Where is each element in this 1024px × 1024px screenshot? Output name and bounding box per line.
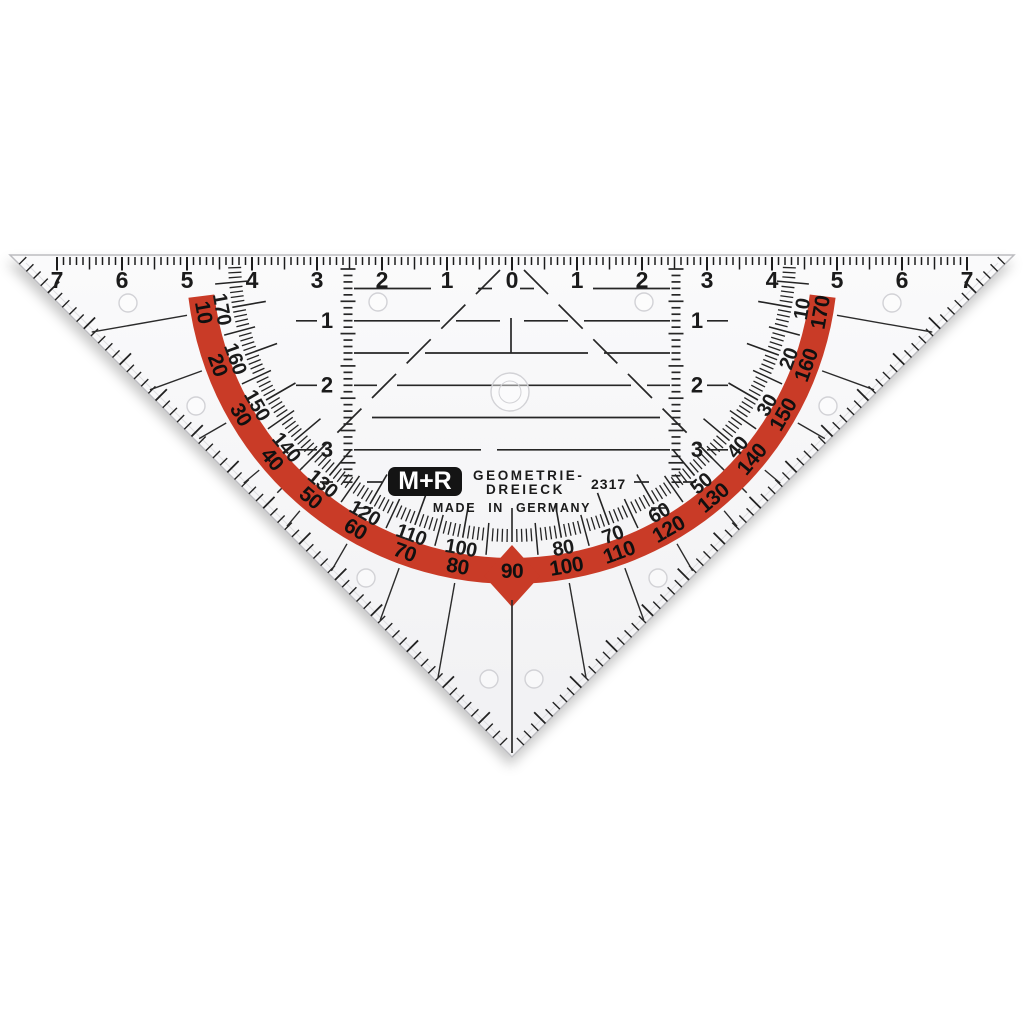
product-photo: 765432101234567 112233 10203040506070801…	[0, 0, 1024, 1024]
product-name-line2: DREIECK	[486, 482, 565, 497]
molding-dot	[525, 670, 543, 688]
molding-dot	[480, 670, 498, 688]
band-degree-label: 90	[501, 560, 523, 583]
guide-label-right: 3	[691, 437, 703, 462]
cm-label: 6	[896, 267, 909, 293]
cm-label: 0	[506, 267, 519, 293]
guide-label-left: 1	[321, 308, 333, 333]
cm-label: 6	[116, 267, 129, 293]
molding-dot	[369, 293, 387, 311]
cm-label: 5	[831, 267, 844, 293]
brand-logo-text: M+R	[398, 467, 451, 495]
molding-dot	[187, 397, 205, 415]
molding-dot	[119, 294, 137, 312]
cm-label: 1	[571, 267, 584, 293]
guide-label-right: 2	[691, 372, 703, 397]
guide-label-right: 1	[691, 308, 703, 333]
cm-label: 4	[766, 267, 779, 293]
cm-label: 3	[701, 267, 714, 293]
band-degree-label: 10	[190, 299, 217, 325]
cm-label: 3	[311, 267, 324, 293]
guide-label-left: 3	[321, 437, 333, 462]
molding-dot	[819, 397, 837, 415]
molding-dot	[491, 373, 529, 411]
cm-label: 4	[246, 267, 259, 293]
band-degree-label: 80	[445, 553, 471, 580]
cm-label: 1	[441, 267, 454, 293]
molding-dot	[635, 293, 653, 311]
molding-dot	[649, 569, 667, 587]
origin-text: MADE IN GERMANY	[433, 501, 591, 515]
product-name-line1: GEOMETRIE-	[473, 468, 585, 483]
model-number: 2317	[591, 476, 626, 492]
molding-dot	[883, 294, 901, 312]
molding-dot	[357, 569, 375, 587]
guide-label-left: 2	[321, 372, 333, 397]
cm-label: 5	[181, 267, 194, 293]
geometry-triangle-ruler: 765432101234567 112233 10203040506070801…	[0, 0, 1024, 1024]
